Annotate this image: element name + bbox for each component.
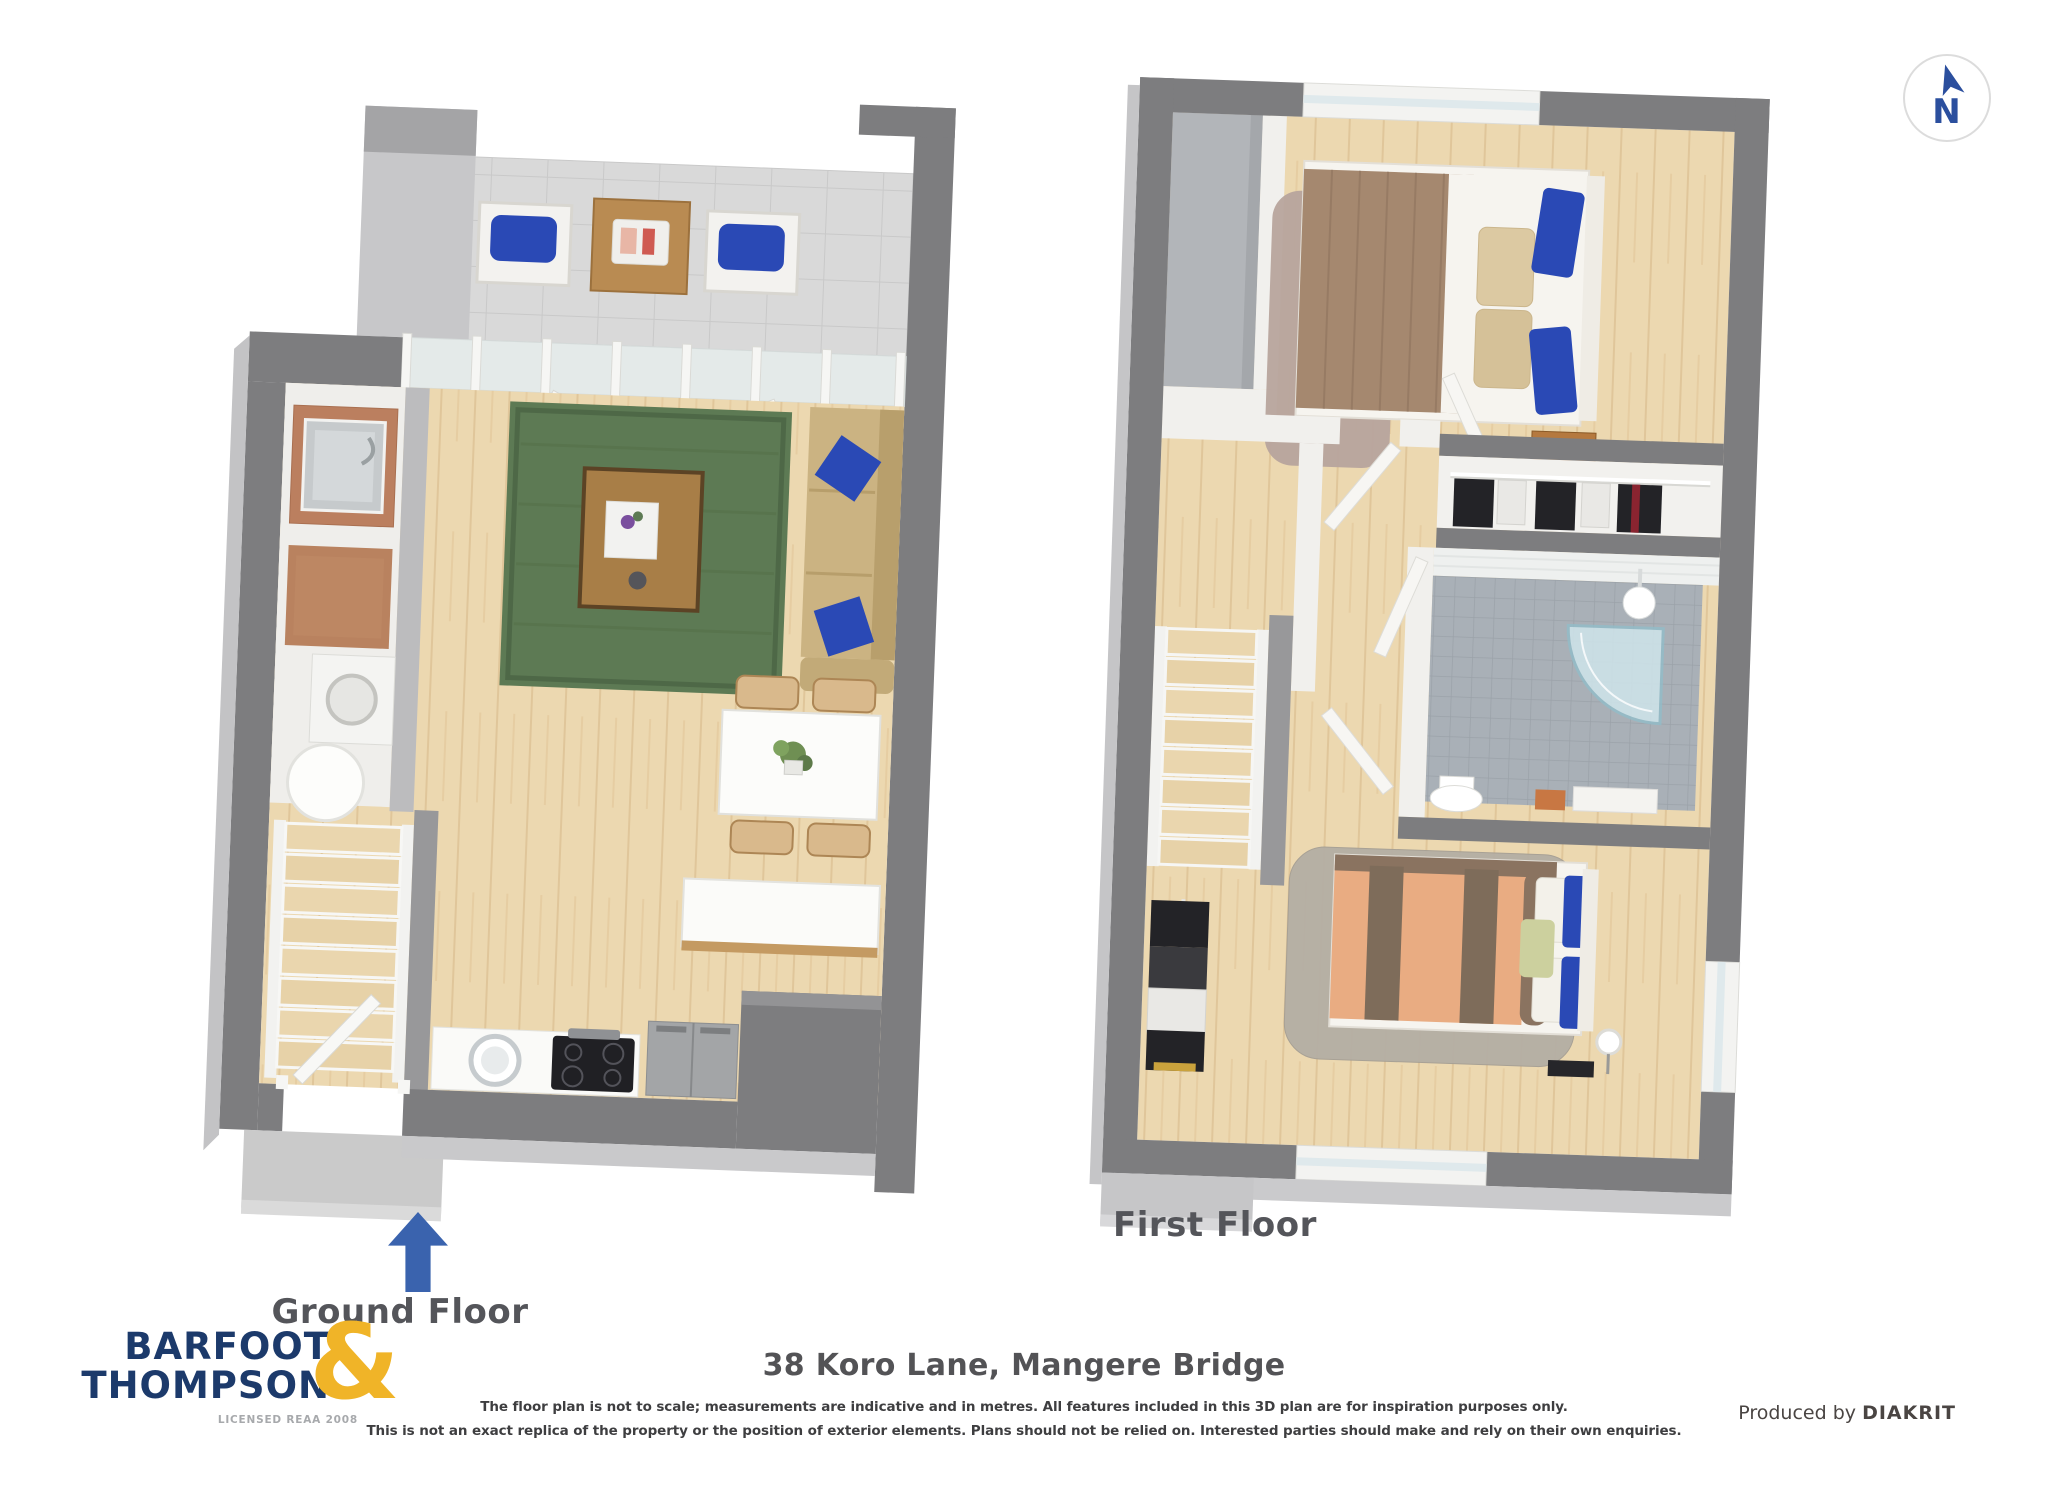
logo-ampersand-icon: & [309,1310,400,1414]
bath-mat [1535,789,1566,810]
laundry-room [269,383,430,824]
bedroom2-bed [1329,854,1599,1035]
bathroom [1367,546,1720,850]
clothes [1535,481,1577,530]
wall [736,991,882,1154]
wall [257,1083,284,1131]
coffee-table [579,468,702,610]
clothes [1497,480,1527,525]
pillow [1529,326,1578,415]
clothes [1453,478,1495,527]
brand-logo: BARFOOT THOMPSON & LICENSED REAA 2008 [88,1328,388,1438]
logo-word-barfoot: BARFOOT [81,1328,330,1367]
first-floor-label: First Floor [1113,1205,1317,1245]
pillow [1519,919,1555,978]
vanity [1573,787,1658,814]
wall [1399,419,1440,447]
clothes [1581,483,1611,528]
pillow [1476,227,1535,307]
logo-license: LICENSED REAA 2008 [218,1414,358,1426]
produced-by: Produced by DIAKRIT [1738,1402,1956,1424]
logo-word-thompson: THOMPSON [81,1367,330,1406]
wall [248,331,403,387]
brand-logo-words: BARFOOT THOMPSON [81,1328,330,1406]
patio-chair [477,202,572,285]
floorplan-page: N [0,0,2048,1494]
wall [1163,386,1278,416]
patio-chair [705,211,800,294]
patio [357,106,915,357]
fridge [646,1021,739,1098]
dining-chair [807,823,870,857]
pillow [1474,309,1533,389]
kitchen-island [681,878,880,957]
sofa [799,407,904,694]
wall [859,105,956,139]
north-label: N [1905,92,1989,132]
produced-by-label: Produced by [1738,1402,1862,1424]
patio-table [591,199,690,295]
producer-name: DIAKRIT [1862,1402,1956,1424]
clothes-rack [1146,898,1210,1072]
wardrobe [1436,434,1724,558]
ground-floor-plan [170,72,974,1270]
shower-head [1623,586,1656,619]
floor-lamp [1596,1030,1621,1055]
compass: N [1903,54,1991,142]
washing-machine [309,654,395,745]
dining-chair [730,820,793,854]
laundry-tub [286,743,365,822]
tv-mount [1548,1060,1595,1078]
bench [285,545,393,649]
first-floor-plan [1072,64,1812,1258]
dining-chair [736,675,799,709]
laundry-sink [289,405,397,527]
dining-chair [813,678,876,712]
